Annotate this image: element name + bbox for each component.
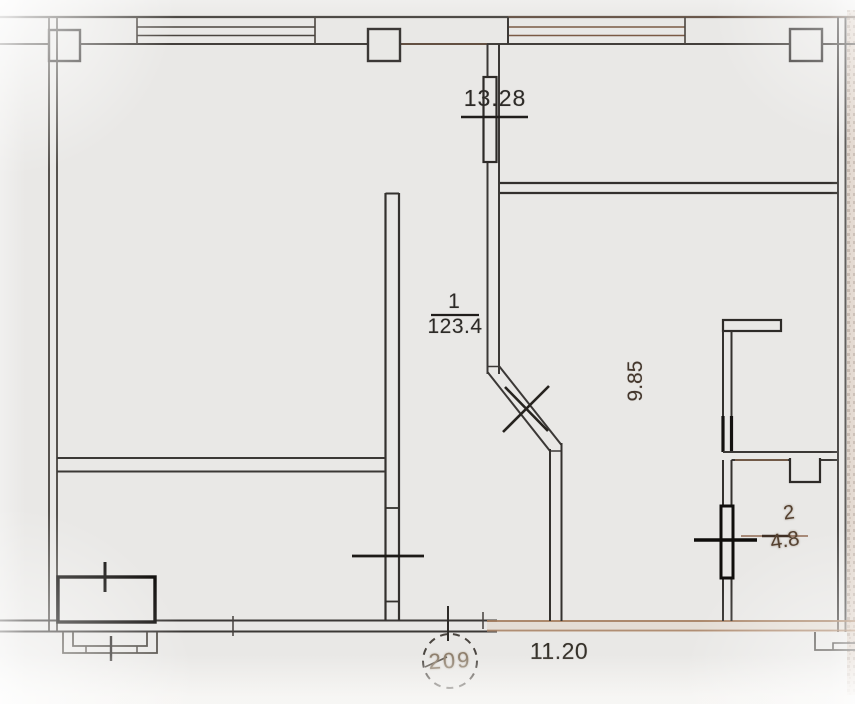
column-pilaster-right bbox=[790, 29, 822, 61]
column-pilaster-middle bbox=[368, 29, 400, 61]
wall-stub-horizontal bbox=[723, 320, 781, 331]
window-frame bbox=[721, 506, 733, 578]
room-2-number: 2 bbox=[773, 501, 805, 525]
dimension-right-label: 9.85 bbox=[625, 351, 647, 411]
floorplan-canvas: 13.28 1 123.4 9.85 2 4.8 11.20 209 bbox=[0, 0, 855, 704]
dimension-top-label: 13.28 bbox=[458, 86, 532, 110]
dimension-bottom-label: 11.20 bbox=[523, 639, 595, 663]
unit-number-badge: 209 bbox=[422, 648, 477, 674]
room-1-area: 123.4 bbox=[419, 316, 491, 338]
room-1-number: 1 bbox=[428, 291, 480, 313]
photo-edge-texture bbox=[847, 10, 855, 695]
floorplan-drawing bbox=[0, 0, 855, 704]
column-pilaster-left bbox=[49, 30, 80, 61]
